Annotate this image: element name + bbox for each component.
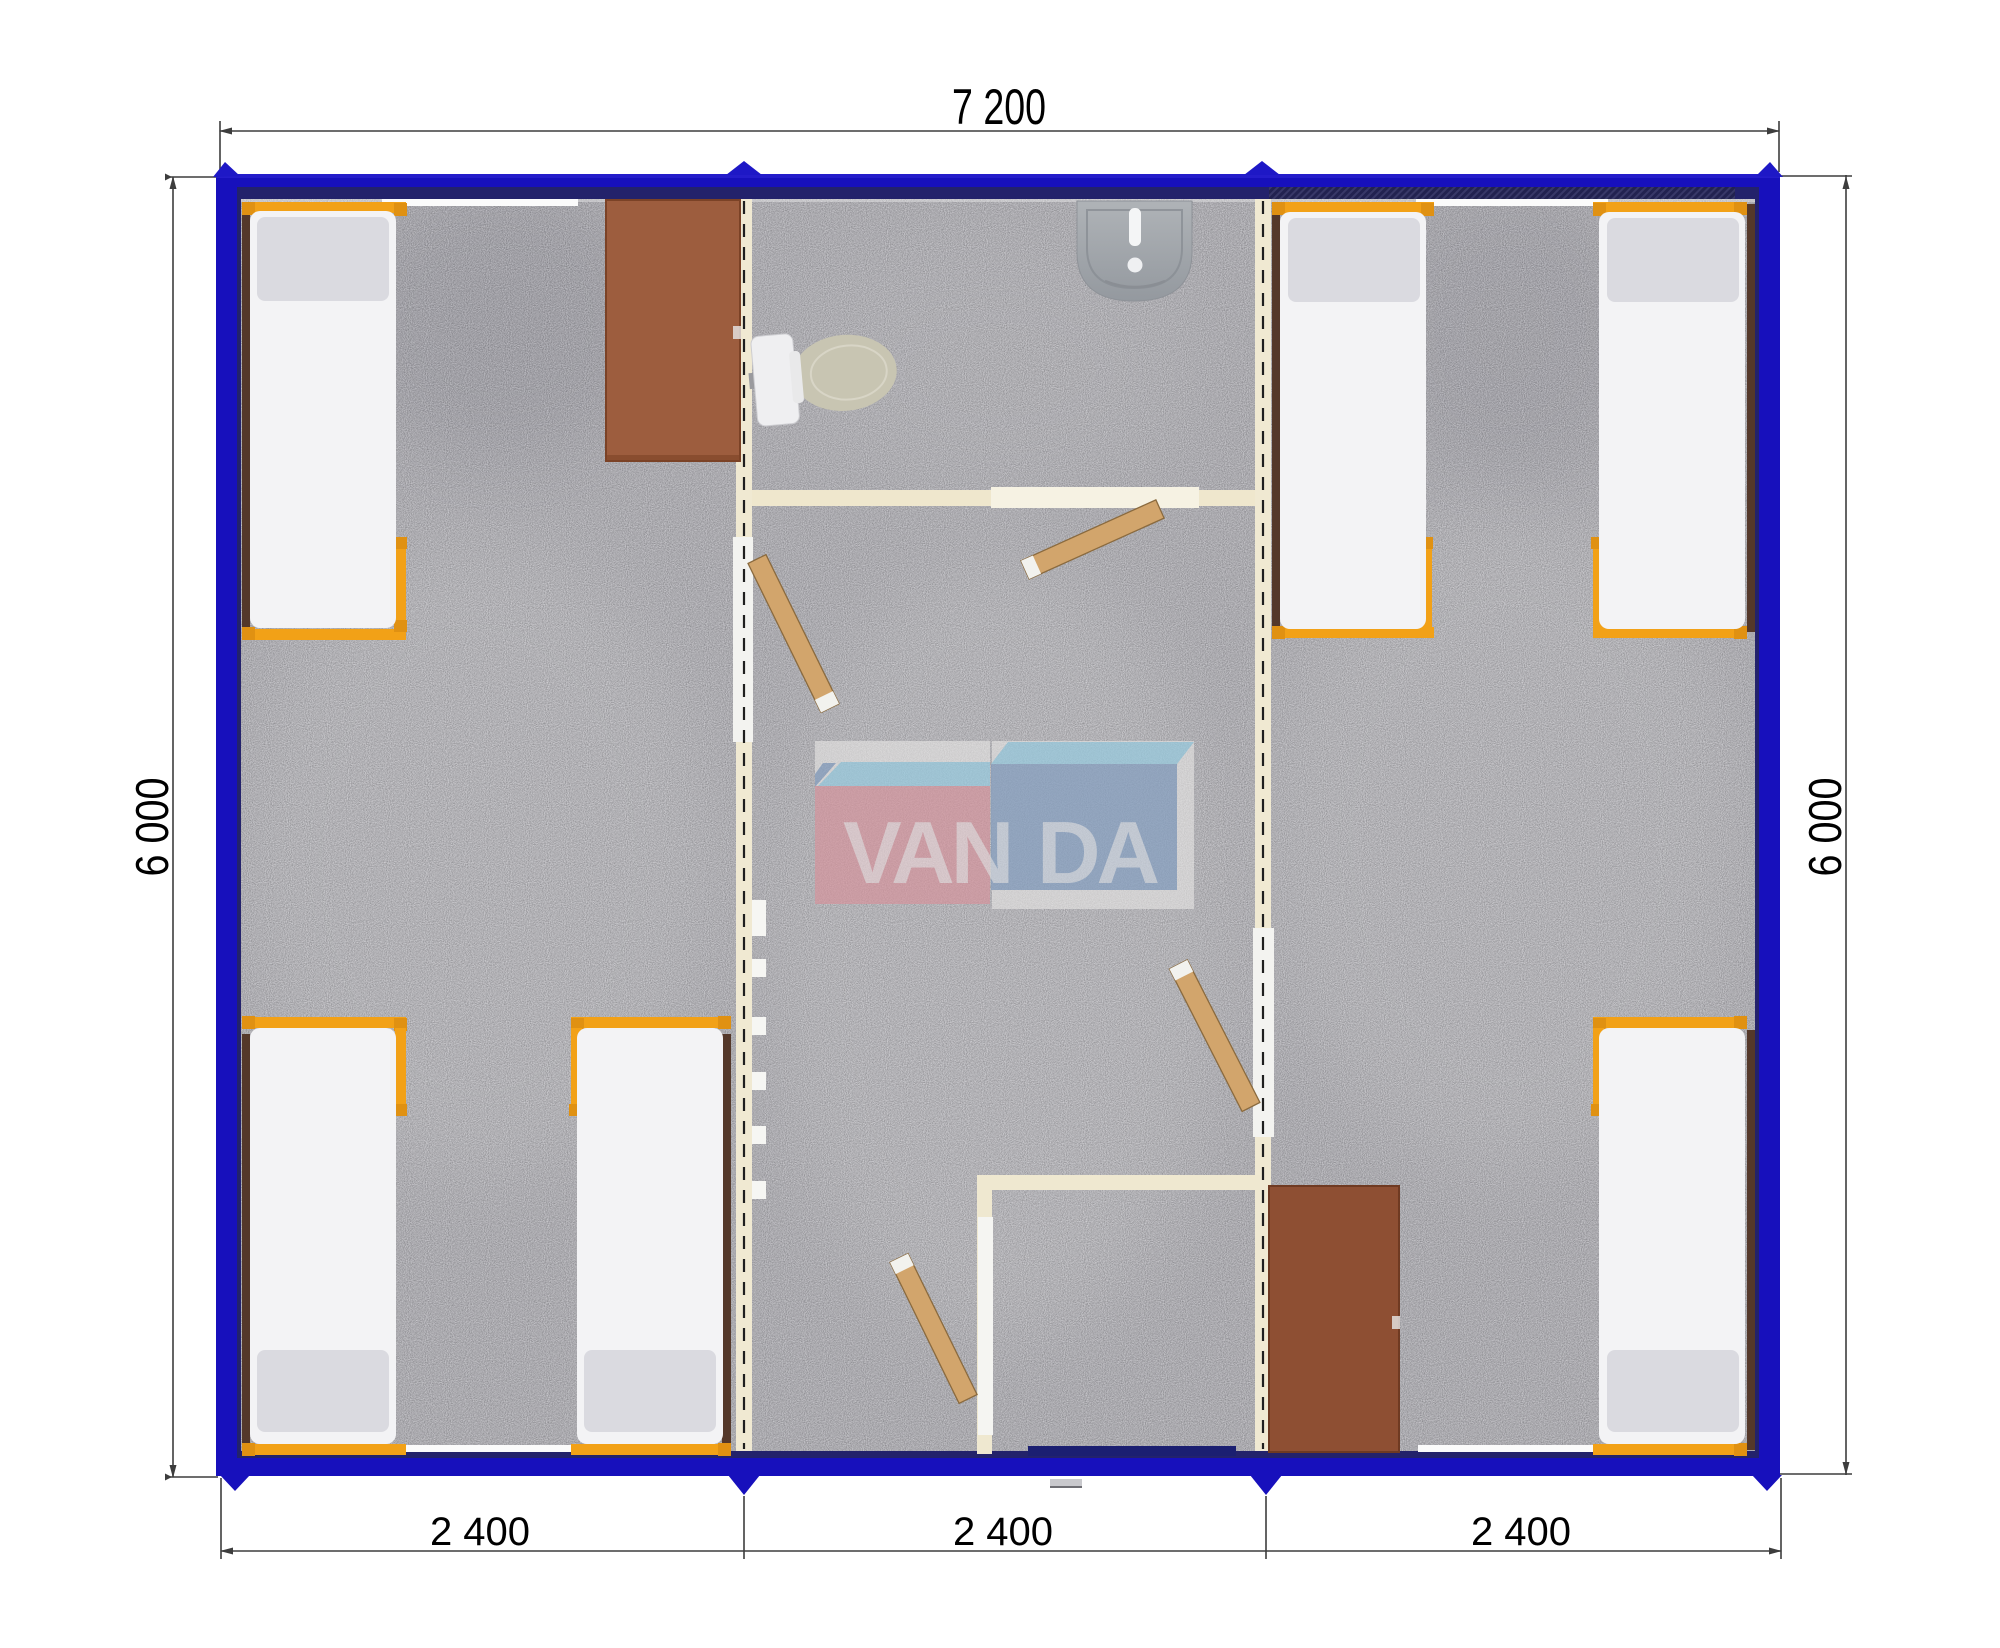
svg-text:DA: DA	[1037, 803, 1159, 902]
svg-text:2 400: 2 400	[953, 1510, 1053, 1554]
svg-text:2 400: 2 400	[430, 1510, 530, 1554]
svg-text:VAN: VAN	[843, 803, 1010, 902]
svg-text:2 400: 2 400	[1471, 1510, 1571, 1554]
svg-text:6 000: 6 000	[1799, 778, 1851, 877]
svg-text:7 200: 7 200	[952, 79, 1046, 135]
svg-text:6 000: 6 000	[126, 778, 178, 877]
